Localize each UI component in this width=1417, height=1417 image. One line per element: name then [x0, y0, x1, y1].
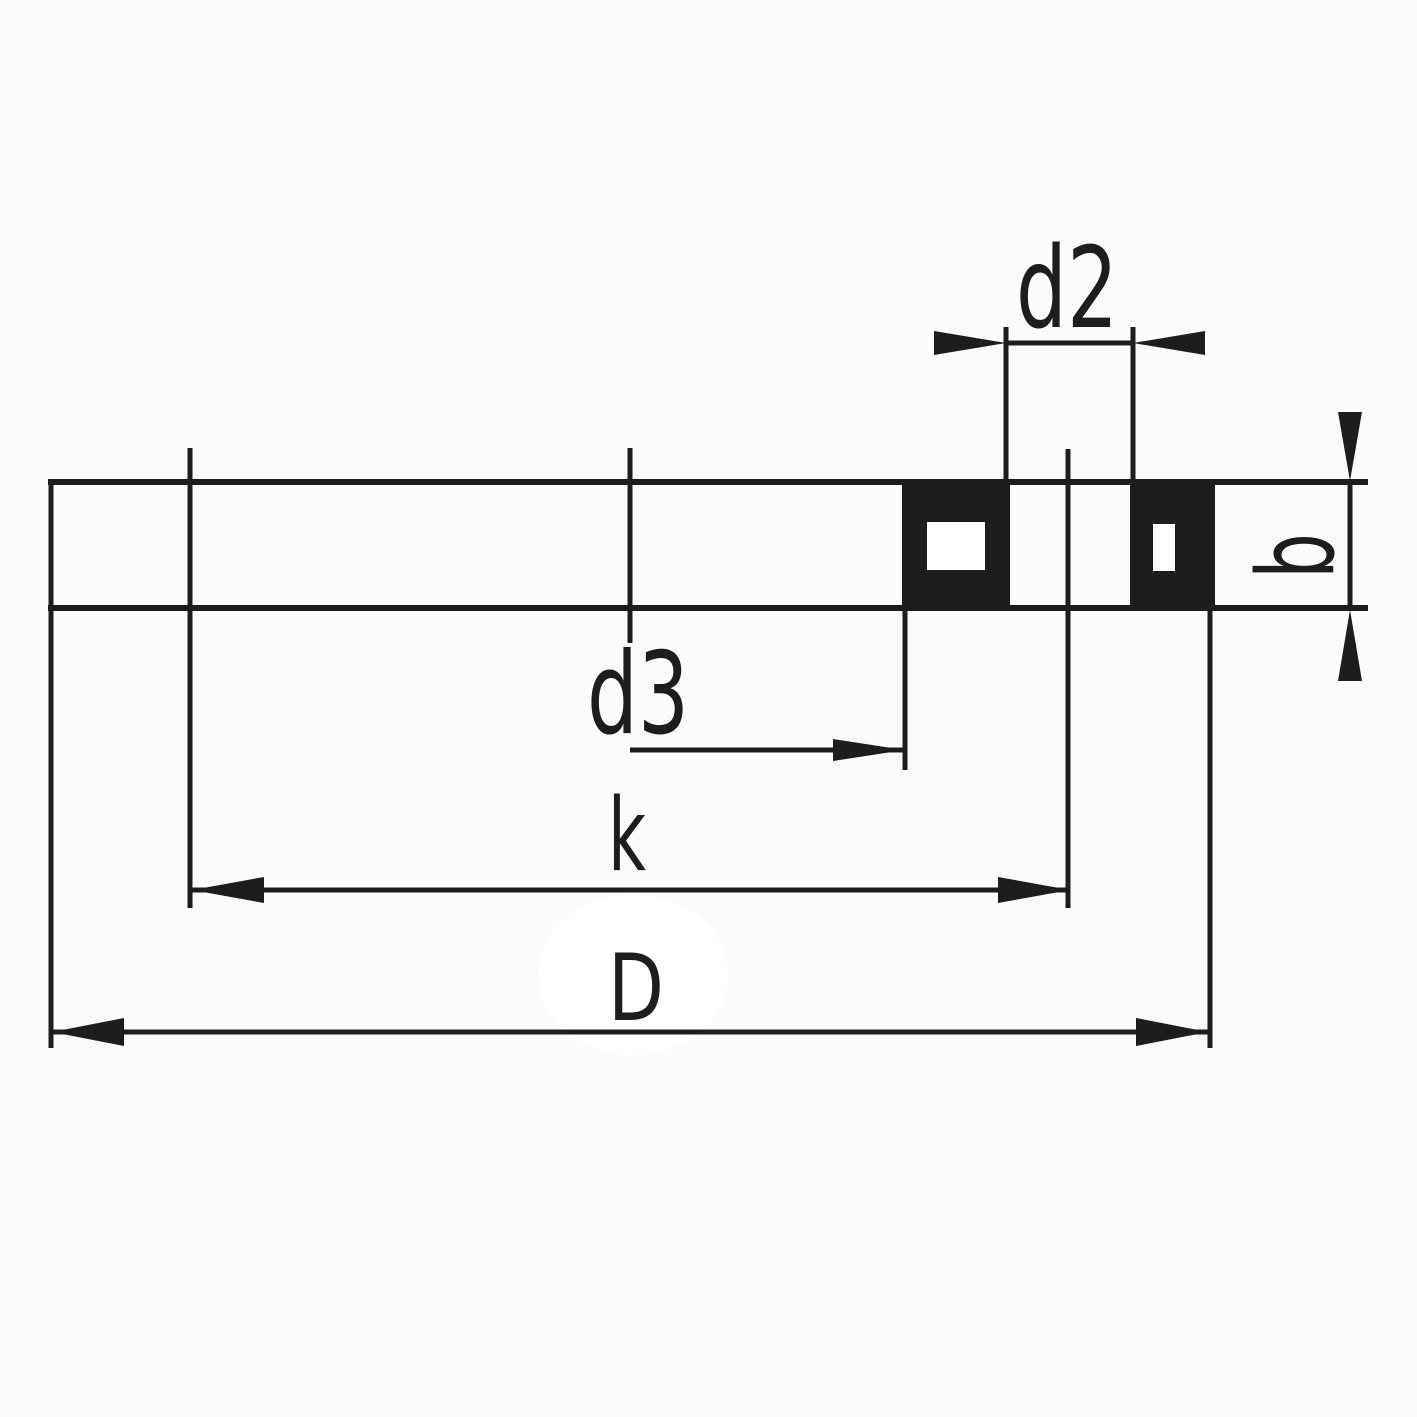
- label-k: k: [608, 776, 646, 894]
- label-b: b: [1235, 533, 1358, 579]
- flange-dimension-diagram: d2 d3 k D b: [0, 0, 1417, 1417]
- d2-arrowhead-right: [1133, 331, 1205, 355]
- label-D: D: [608, 934, 664, 1042]
- d2-arrowhead-left: [934, 331, 1006, 355]
- bolt-hole-left-window: [927, 522, 985, 570]
- k-arrowhead-right: [998, 877, 1070, 903]
- label-d3: d3: [587, 628, 689, 760]
- b-arrowhead-bottom: [1338, 610, 1362, 681]
- b-arrowhead-top: [1338, 412, 1362, 481]
- d3-arrowhead: [833, 739, 905, 761]
- bolt-hole-right-window: [1153, 524, 1175, 571]
- label-d2: d2: [1016, 224, 1118, 354]
- k-arrowhead-left: [192, 877, 264, 903]
- D-arrowhead-right: [1136, 1018, 1208, 1046]
- D-arrowhead-left: [52, 1018, 124, 1046]
- technical-drawing-canvas: d2 d3 k D b: [0, 0, 1417, 1417]
